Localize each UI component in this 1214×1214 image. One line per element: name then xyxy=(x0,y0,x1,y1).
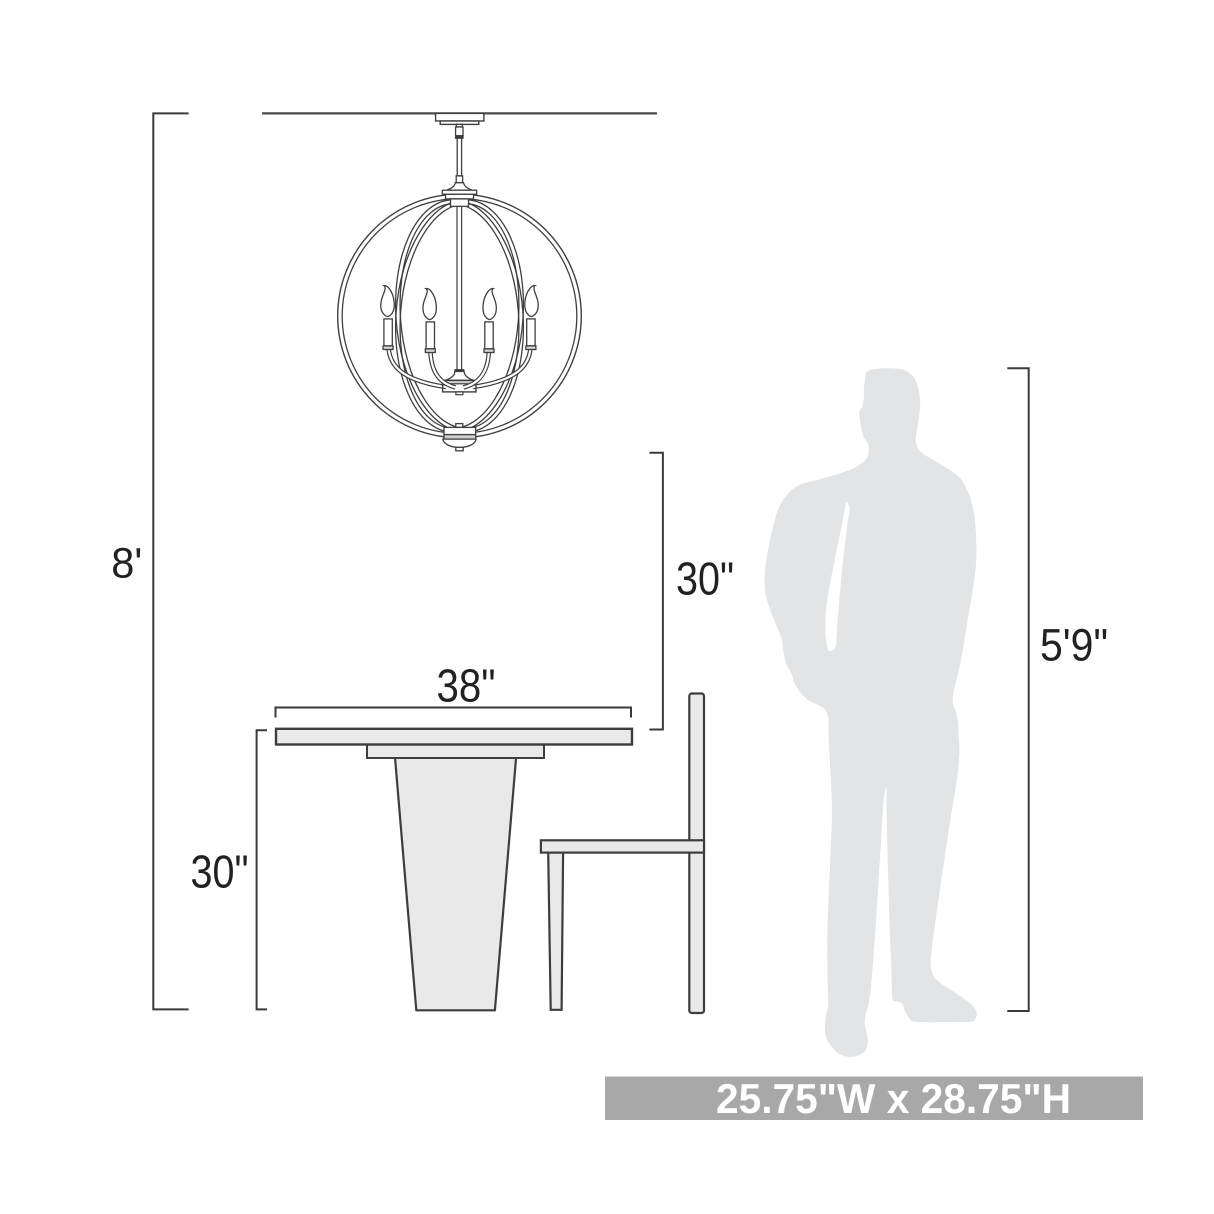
svg-text:5'9": 5'9" xyxy=(1040,620,1108,671)
svg-text:38": 38" xyxy=(437,659,496,711)
svg-text:25.75"W x 28.75"H: 25.75"W x 28.75"H xyxy=(716,1075,1071,1122)
svg-text:8': 8' xyxy=(111,540,142,588)
svg-text:30": 30" xyxy=(676,552,734,604)
svg-text:30": 30" xyxy=(191,846,249,898)
